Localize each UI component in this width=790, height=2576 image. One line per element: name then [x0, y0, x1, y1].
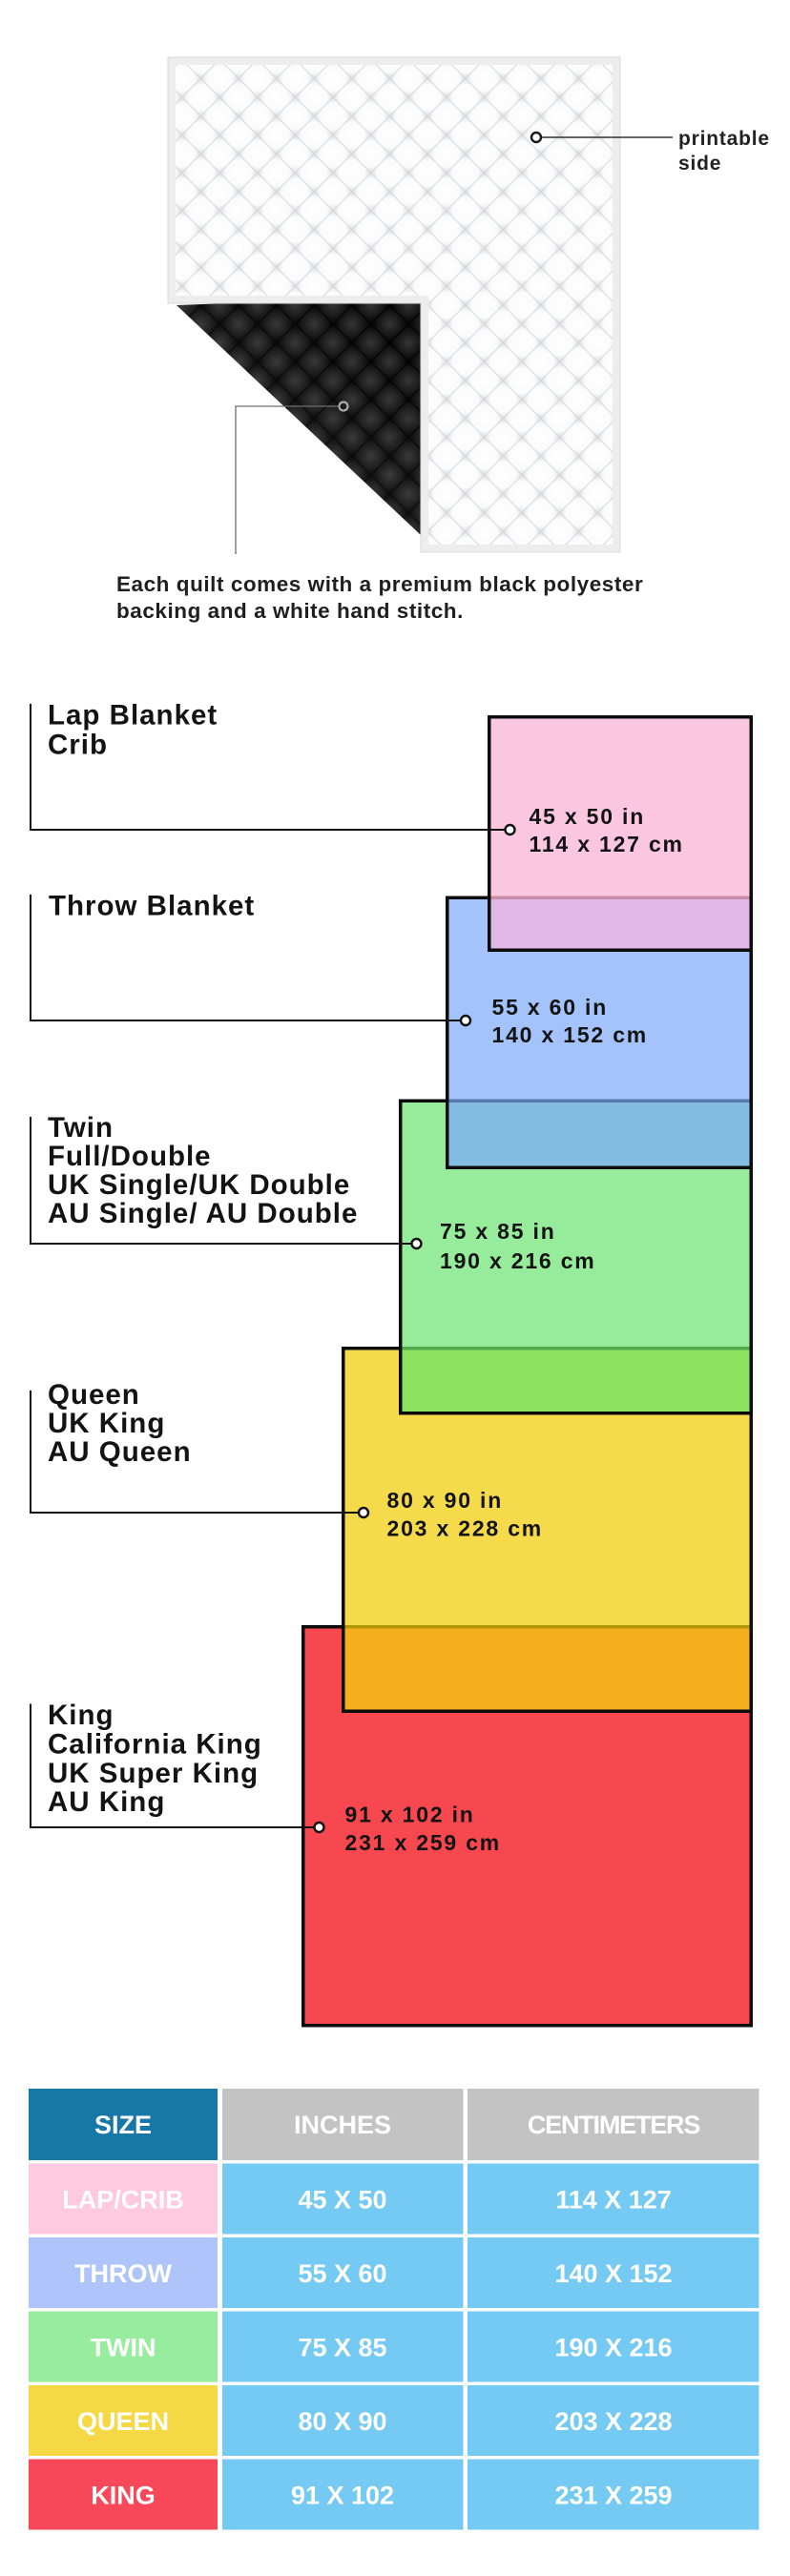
svg-text:QUEEN: QUEEN — [77, 2407, 169, 2436]
svg-text:Crib: Crib — [48, 730, 108, 761]
svg-text:Twin: Twin — [48, 1112, 114, 1144]
svg-text:140 X 152: 140 X 152 — [554, 2259, 672, 2288]
svg-text:King: King — [48, 1700, 114, 1731]
svg-text:91 X 102: 91 X 102 — [291, 2482, 394, 2510]
svg-text:AU Single/ AU Double: AU Single/ AU Double — [48, 1198, 358, 1229]
svg-text:LAP/CRIB: LAP/CRIB — [62, 2186, 184, 2215]
svg-text:140 x 152 cm: 140 x 152 cm — [492, 1022, 649, 1047]
svg-text:55 x 60 in: 55 x 60 in — [492, 995, 609, 1020]
svg-text:Throw Blanket: Throw Blanket — [49, 891, 255, 922]
svg-text:KING: KING — [91, 2482, 156, 2510]
svg-text:AU Queen: AU Queen — [48, 1436, 192, 1468]
svg-text:Full/Double: Full/Double — [48, 1141, 212, 1172]
svg-text:THROW: THROW — [74, 2259, 172, 2288]
svg-text:printable: printable — [678, 128, 770, 150]
svg-text:231 x 259 cm: 231 x 259 cm — [345, 1830, 502, 1855]
svg-text:Lap Blanket: Lap Blanket — [48, 700, 218, 732]
svg-text:80 X 90: 80 X 90 — [298, 2407, 386, 2436]
svg-text:INCHES: INCHES — [294, 2111, 391, 2139]
svg-text:UK King: UK King — [48, 1408, 165, 1439]
svg-text:UK Single/UK Double: UK Single/UK Double — [48, 1169, 350, 1201]
svg-text:Each quilt comes with a premiu: Each quilt comes with a premium black po… — [116, 572, 643, 596]
svg-text:75 X 85: 75 X 85 — [298, 2334, 386, 2362]
svg-text:190 x 216 cm: 190 x 216 cm — [440, 1248, 596, 1273]
svg-text:CENTIMETERS: CENTIMETERS — [528, 2111, 700, 2139]
svg-text:75 x 85 in: 75 x 85 in — [440, 1219, 556, 1244]
svg-text:UK Super King: UK Super King — [48, 1758, 259, 1789]
svg-text:55 X 60: 55 X 60 — [298, 2259, 386, 2288]
svg-text:231 X 259: 231 X 259 — [554, 2482, 672, 2510]
svg-text:45 x 50 in: 45 x 50 in — [530, 804, 646, 829]
svg-text:backing and a white hand stitc: backing and a white hand stitch. — [116, 599, 464, 623]
svg-text:114 x 127 cm: 114 x 127 cm — [530, 832, 684, 856]
svg-text:side: side — [678, 153, 721, 175]
svg-text:AU King: AU King — [48, 1786, 165, 1818]
svg-text:45 X 50: 45 X 50 — [298, 2186, 386, 2215]
svg-text:80 x 90 in: 80 x 90 in — [387, 1488, 504, 1513]
svg-text:California King: California King — [48, 1729, 262, 1761]
svg-text:SIZE: SIZE — [94, 2111, 152, 2139]
svg-text:114 X 127: 114 X 127 — [555, 2186, 672, 2215]
svg-text:91 x 102 in: 91 x 102 in — [345, 1803, 475, 1827]
svg-text:Queen: Queen — [48, 1379, 140, 1411]
svg-text:203 X 228: 203 X 228 — [554, 2407, 672, 2436]
svg-text:203 x 228 cm: 203 x 228 cm — [387, 1516, 544, 1541]
svg-text:190 X 216: 190 X 216 — [554, 2334, 672, 2362]
svg-text:TWIN: TWIN — [91, 2334, 156, 2362]
